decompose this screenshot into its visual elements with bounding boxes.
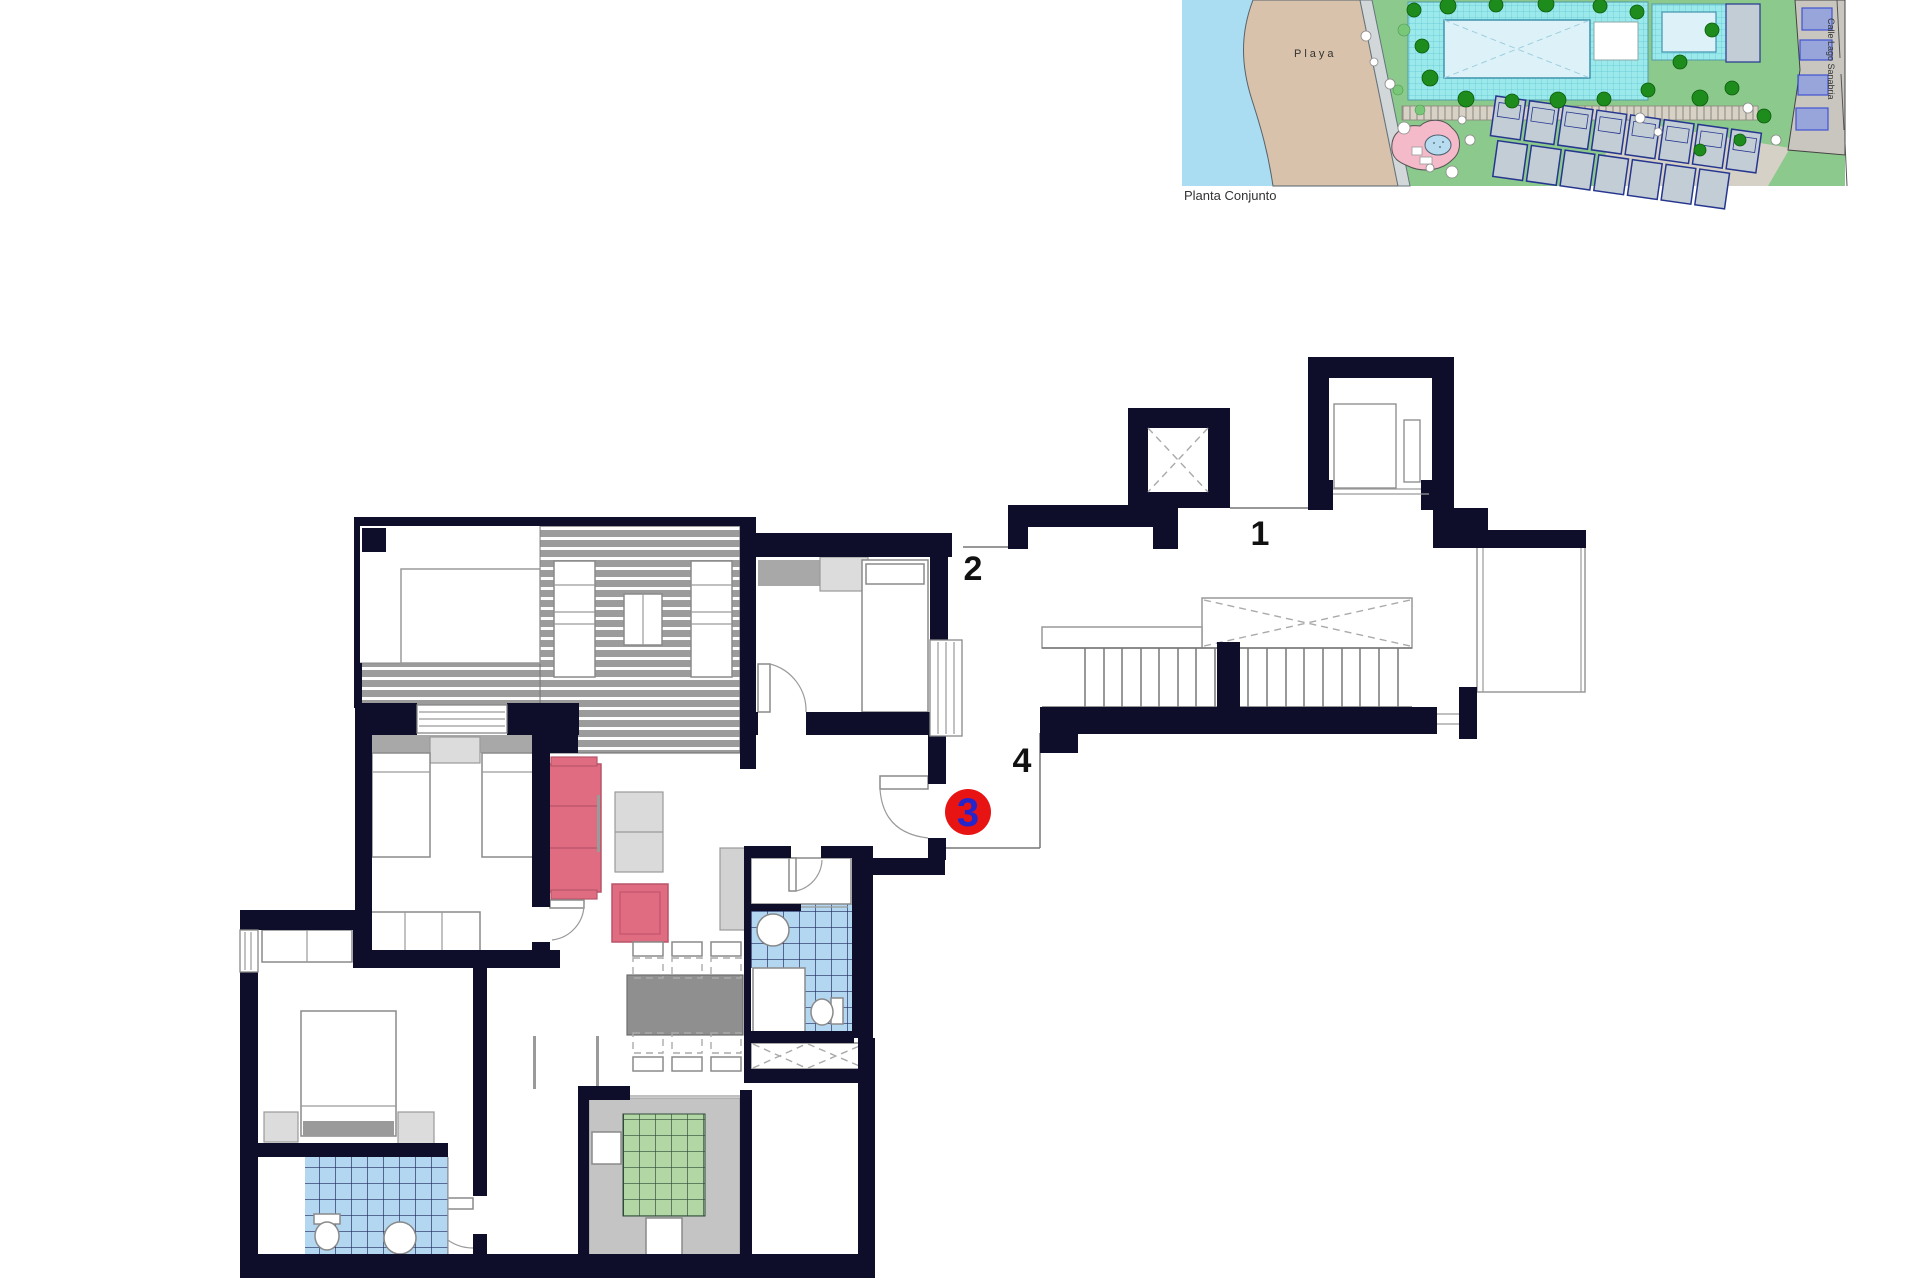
upper-terrace <box>1477 547 1585 692</box>
sun-lounger <box>554 561 595 677</box>
floor-plan: 1 2 4 3 <box>240 357 1586 1278</box>
washbasin <box>757 914 789 946</box>
site-plan: Calle Lago Sanabria Playa Planta Conjunt… <box>1182 0 1847 213</box>
kitchen <box>589 1096 742 1256</box>
bedroom-2-window <box>930 640 962 736</box>
stair-platform <box>1202 598 1412 648</box>
bathroom <box>751 858 854 1034</box>
single-bed <box>372 753 430 857</box>
door-leaf <box>758 664 770 712</box>
nightstand <box>264 1112 298 1142</box>
bed-foot-strip <box>303 1121 394 1136</box>
street-label: Calle Lago Sanabria <box>1826 18 1836 100</box>
sofa-arm <box>551 757 597 766</box>
label-corridor-4: 4 <box>1013 742 1032 780</box>
bedroom-3-window <box>417 705 507 733</box>
label-corridor-2: 2 <box>964 550 983 588</box>
kitchen-floor <box>623 1114 705 1216</box>
main-pool <box>1408 2 1648 100</box>
unit-marker-number: 3 <box>957 791 979 835</box>
double-bed <box>301 1011 396 1136</box>
ensuite-bathroom <box>305 1157 448 1257</box>
shower-screen <box>751 904 801 911</box>
washbasin <box>384 1222 416 1254</box>
door-jamb <box>596 1036 599 1086</box>
hall-closet <box>751 1043 866 1069</box>
door-leaf <box>550 900 584 908</box>
shower-tray <box>753 968 805 1032</box>
pillow <box>866 564 924 584</box>
entry-door <box>880 776 928 838</box>
sun-lounger <box>691 561 732 677</box>
sofa-arm <box>551 890 597 899</box>
toilet <box>811 998 843 1025</box>
toilet <box>314 1214 340 1250</box>
door-jamb <box>533 1036 536 1089</box>
stair-railing <box>1042 627 1202 648</box>
unit-marker: 3 <box>945 789 991 835</box>
nightstand <box>430 737 480 763</box>
radiator <box>597 795 600 852</box>
tv-cabinet <box>720 848 748 930</box>
elevator-panel <box>1404 420 1420 482</box>
appliance <box>592 1132 621 1164</box>
living-room <box>533 757 748 1089</box>
nightstand <box>398 1112 434 1146</box>
sofa <box>547 764 601 892</box>
bedroom-2 <box>758 557 928 712</box>
screenshot: Calle Lago Sanabria Playa Planta Conjunt… <box>0 0 1920 1280</box>
vanity <box>751 858 851 904</box>
appliance <box>646 1218 682 1256</box>
site-plan-caption: Planta Conjunto <box>1184 188 1277 203</box>
dining-table <box>627 975 743 1035</box>
bath-door-leaf <box>789 858 796 891</box>
beach-label: Playa <box>1294 48 1337 60</box>
elevator-shaft <box>1308 357 1454 510</box>
terrace-planter <box>401 569 540 663</box>
single-bed <box>482 753 537 857</box>
stair-door-gap <box>1437 709 1459 732</box>
master-bedroom-window <box>240 930 258 972</box>
elevator-car <box>1334 404 1396 488</box>
label-portal-1: 1 <box>1251 515 1270 553</box>
wardrobe <box>368 912 480 952</box>
stair-landing <box>940 357 1585 848</box>
service-shaft <box>1128 408 1230 508</box>
nightstand <box>820 557 868 591</box>
